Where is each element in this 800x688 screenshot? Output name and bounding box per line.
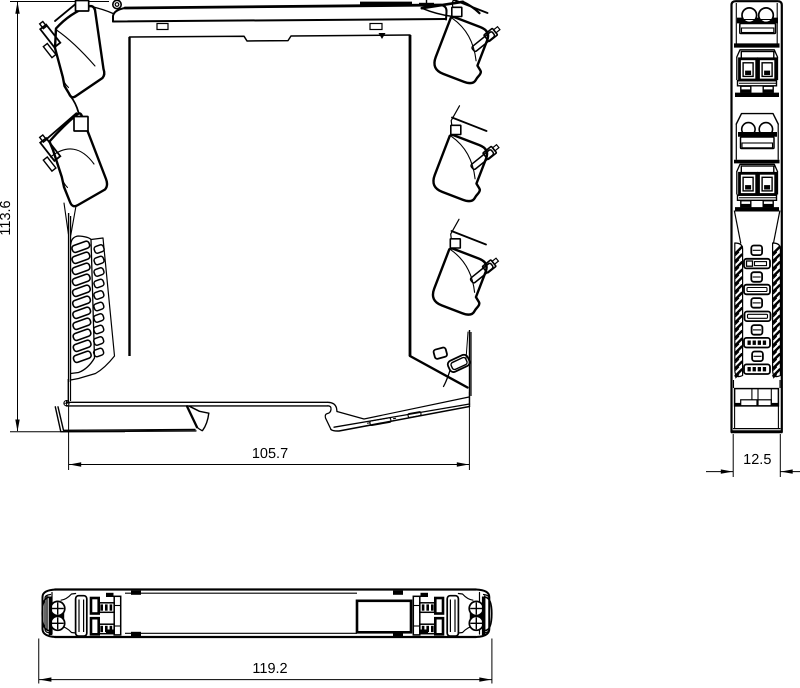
svg-text:119.2: 119.2: [252, 661, 287, 677]
svg-text:105.7: 105.7: [252, 446, 288, 462]
svg-text:113.6: 113.6: [0, 200, 14, 235]
svg-text:12.5: 12.5: [743, 452, 771, 468]
